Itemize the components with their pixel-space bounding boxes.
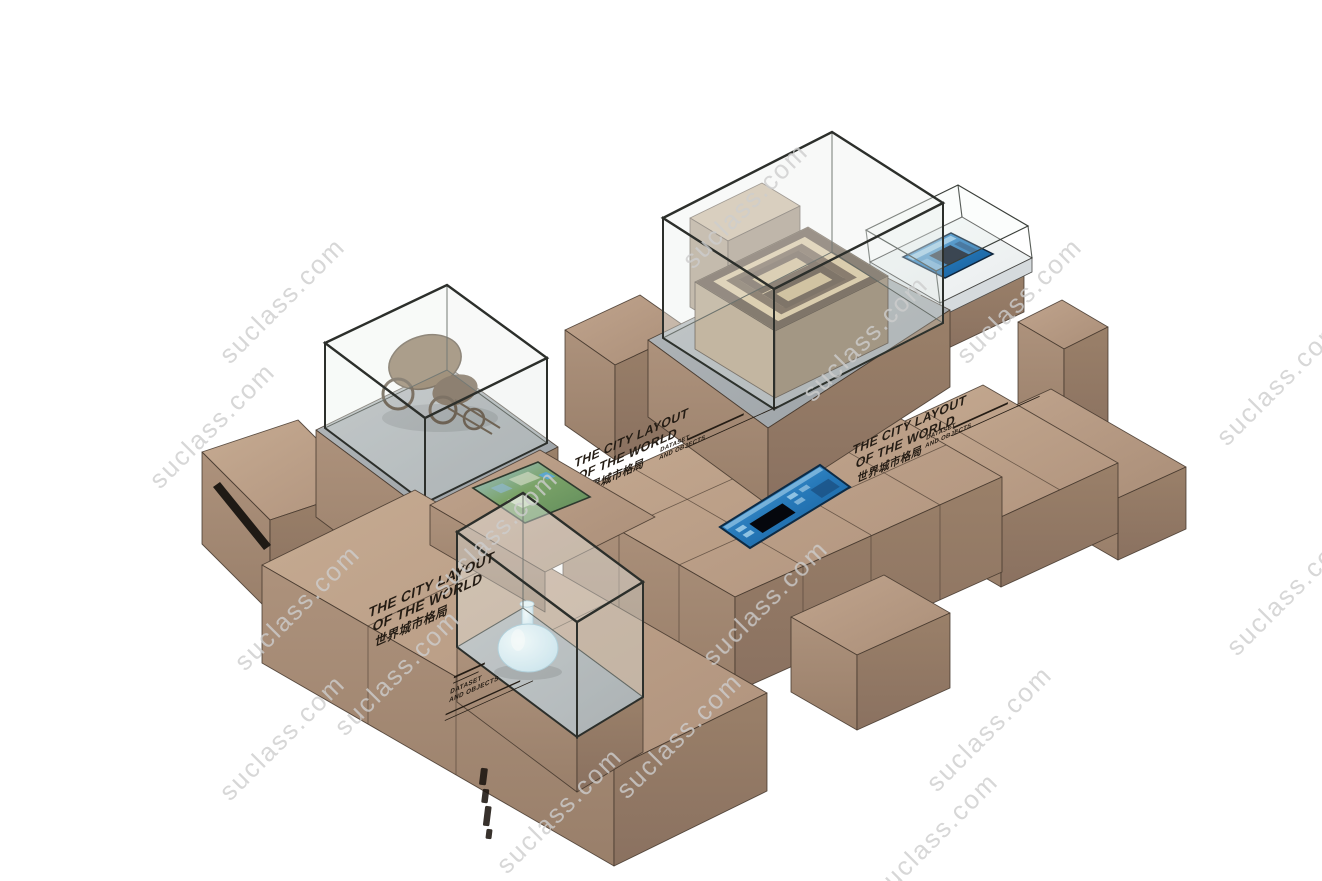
watermark-text: suclass.com (1220, 523, 1322, 661)
watermark-text: suclass.com (213, 668, 351, 806)
isometric-exhibit-scene: THE CITY LAYOUT OF THE WORLD 世界城市格局 DATA… (0, 0, 1322, 881)
exhibition-render-canvas: THE CITY LAYOUT OF THE WORLD 世界城市格局 DATA… (0, 0, 1322, 881)
watermark-text: suclass.com (1210, 313, 1322, 451)
